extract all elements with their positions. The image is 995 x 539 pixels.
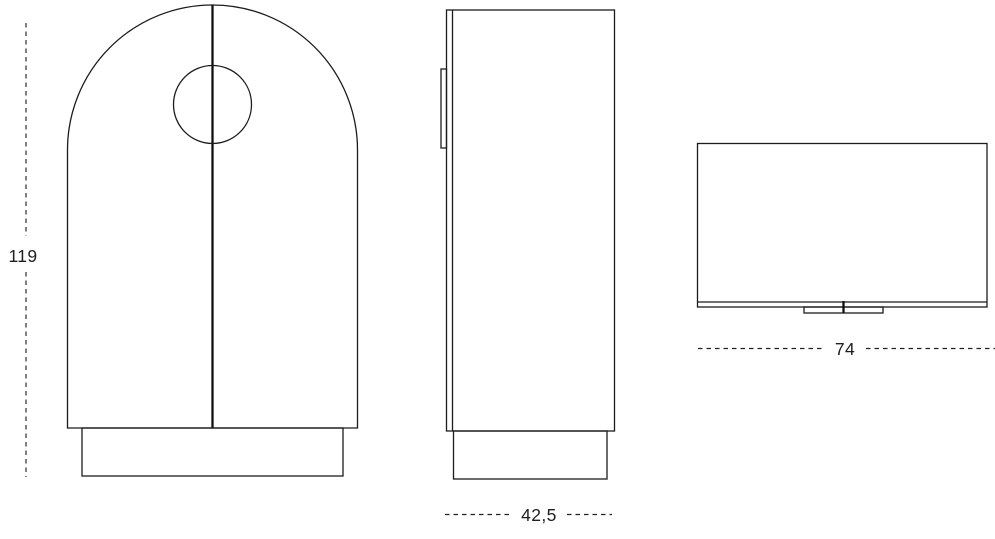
side-hinge-detail — [441, 69, 447, 148]
top-view — [698, 144, 988, 314]
side-view — [441, 10, 615, 479]
height-dimension-label: 119 — [8, 246, 37, 266]
top-body-outline — [698, 144, 988, 308]
width-dimension-label: 74 — [835, 339, 855, 359]
height-dimension: 119 — [8, 23, 37, 477]
width-dimension: 74 — [698, 339, 995, 359]
side-body-outline — [447, 10, 615, 431]
technical-drawing-canvas: 119 42,5 74 — [0, 0, 995, 539]
side-plinth — [454, 431, 608, 479]
cabinet-three-view-drawing: 119 42,5 74 — [0, 0, 995, 539]
depth-dimension: 42,5 — [445, 505, 612, 525]
depth-dimension-label: 42,5 — [521, 505, 557, 525]
front-plinth — [82, 428, 343, 476]
front-view — [68, 5, 358, 476]
